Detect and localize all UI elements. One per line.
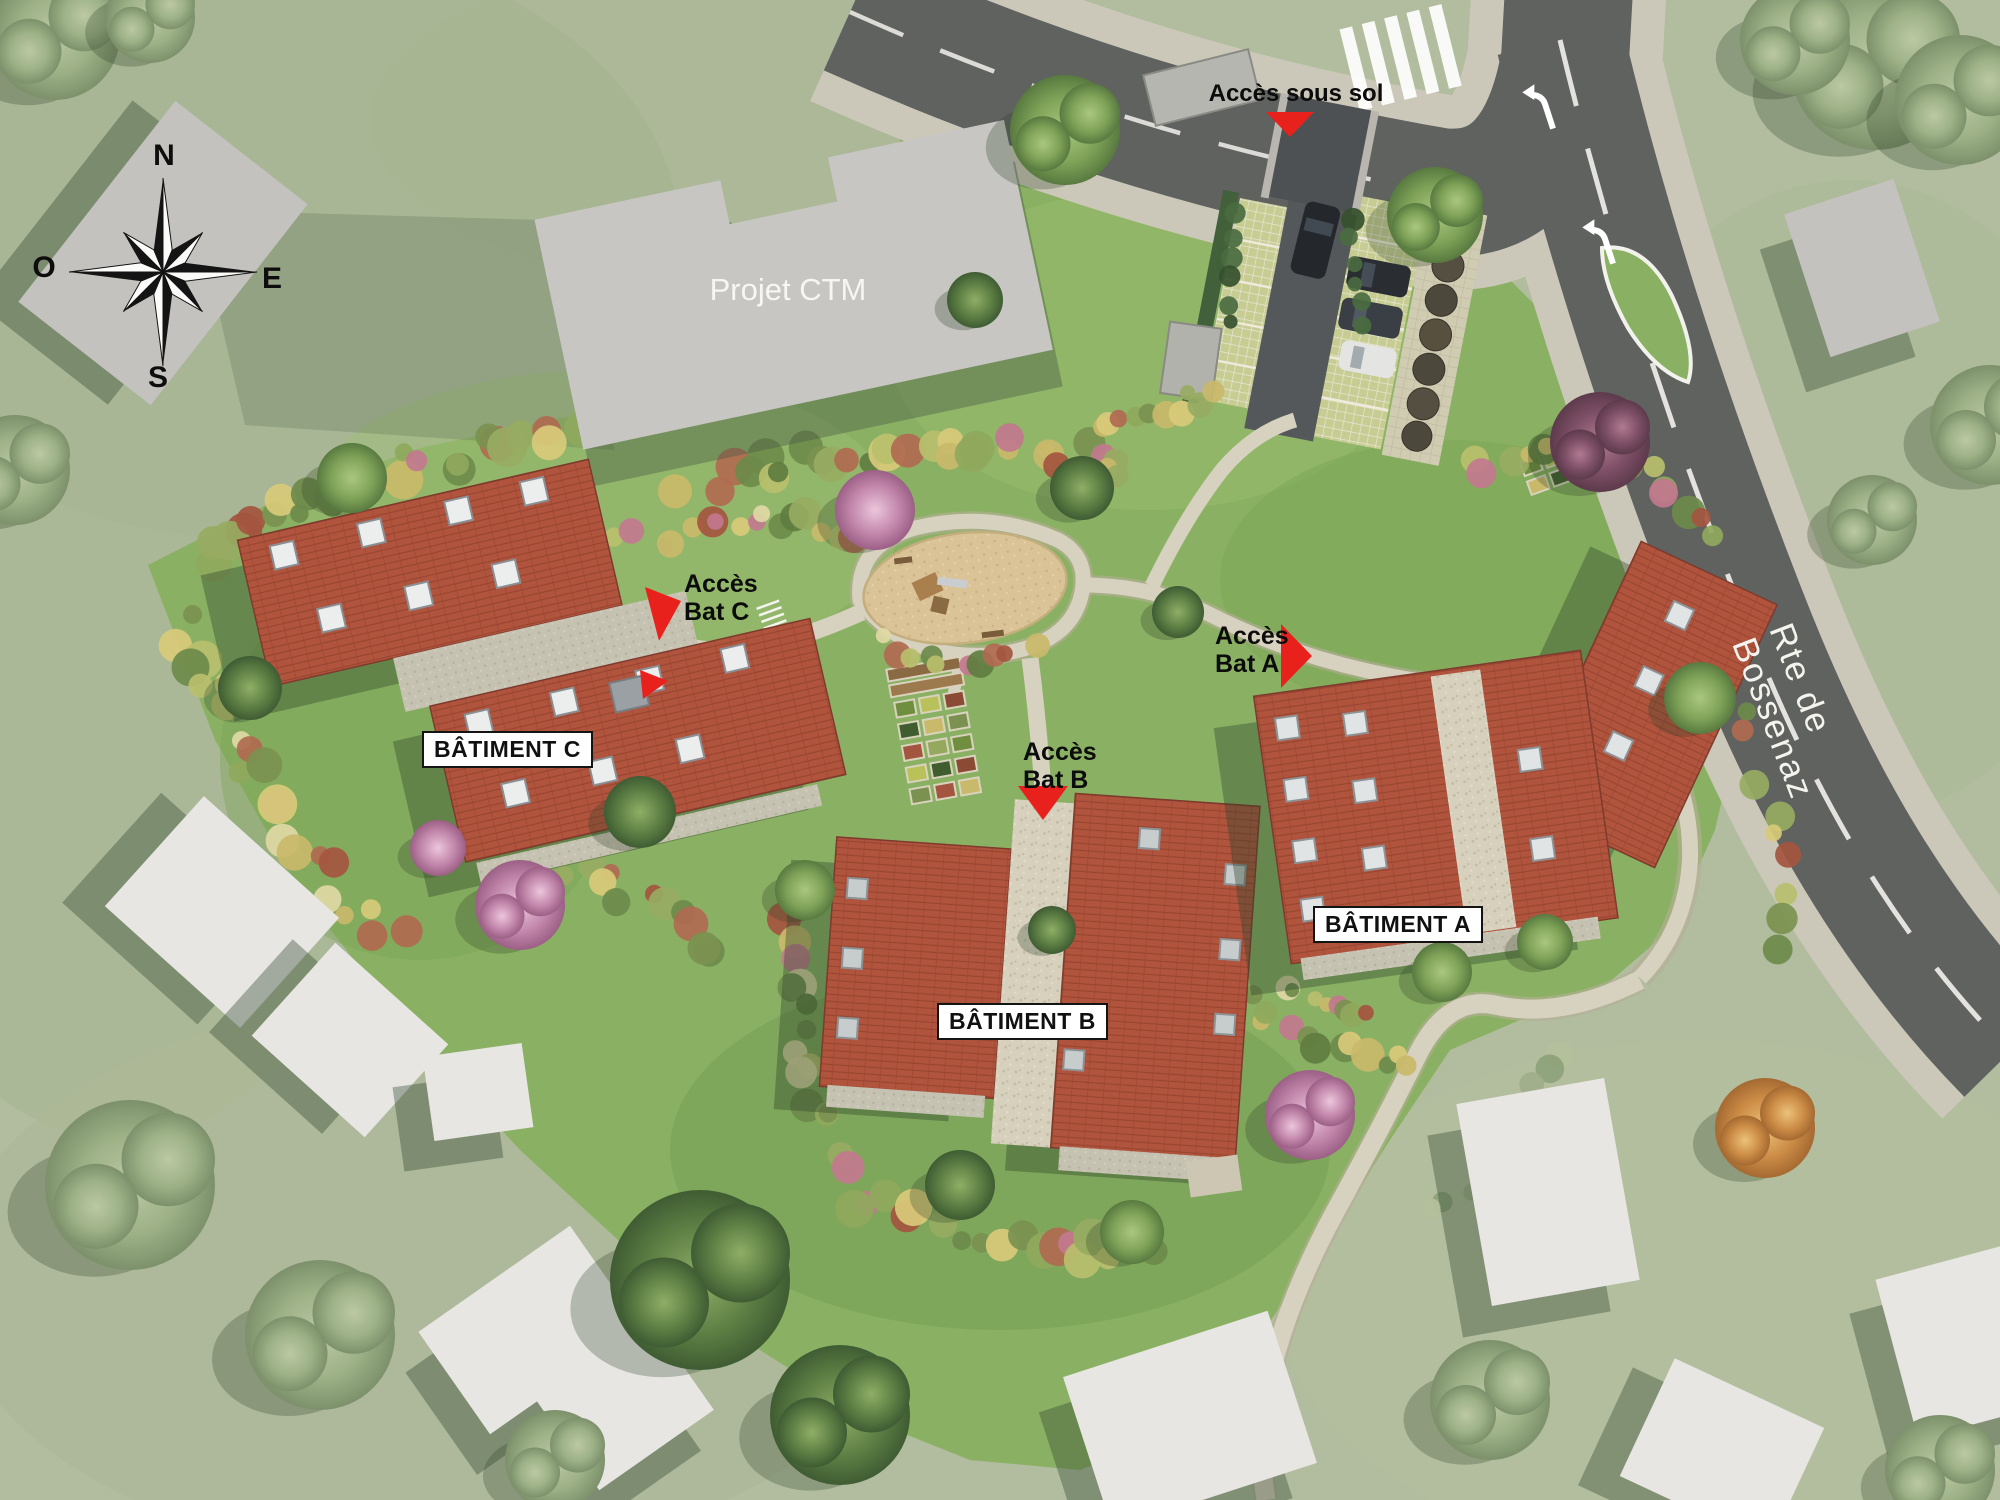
compass-south-label: S <box>148 361 168 395</box>
access-bat-b-line2: Bat B <box>1023 766 1097 794</box>
site-plan-canvas <box>0 0 2000 1500</box>
access-bat-a-line1: Accès <box>1215 622 1289 650</box>
access-bat-a-label: Accès Bat A <box>1215 622 1289 678</box>
projet-ctm-label: Projet CTM <box>688 272 888 308</box>
site-plan: N O E S Projet CTM Accès sous sol Accès … <box>0 0 2000 1500</box>
access-bat-c-line1: Accès <box>684 570 758 598</box>
access-bat-b-line1: Accès <box>1023 738 1097 766</box>
access-bat-c-line2: Bat C <box>684 598 758 626</box>
access-bat-b-label: Accès Bat B <box>1023 738 1097 794</box>
compass-north-label: N <box>153 139 175 173</box>
building-a-label: BÂTIMENT A <box>1313 906 1483 943</box>
building-c-label: BÂTIMENT C <box>422 731 593 768</box>
patio <box>1186 1155 1243 1198</box>
compass-west-label: O <box>32 251 55 285</box>
access-basement-label: Accès sous sol <box>1196 80 1396 108</box>
access-bat-c-label: Accès Bat C <box>684 570 758 626</box>
access-bat-a-line2: Bat A <box>1215 650 1289 678</box>
compass-east-label: E <box>262 262 282 296</box>
building-b-label: BÂTIMENT B <box>937 1003 1108 1040</box>
